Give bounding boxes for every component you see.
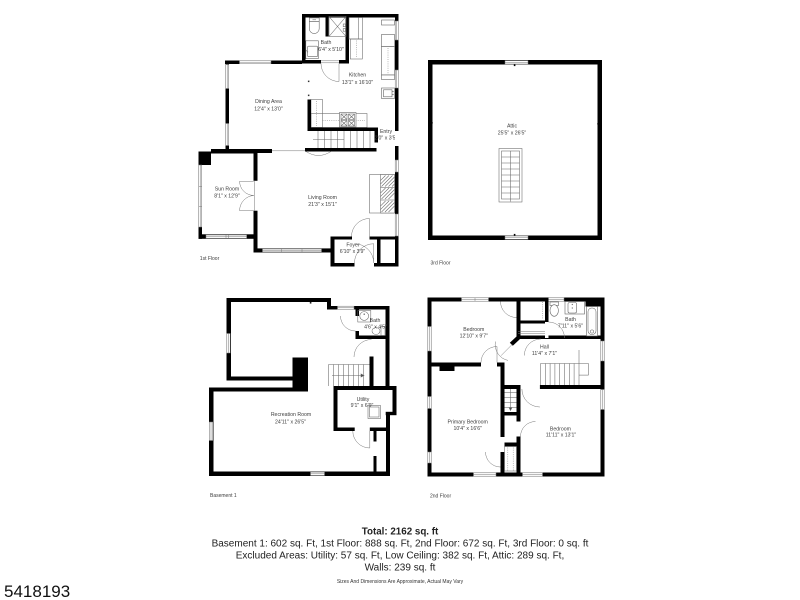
svg-text:Bath: Bath: [370, 318, 381, 324]
svg-text:5418193: 5418193: [4, 582, 70, 600]
svg-text:2'0" x 3'5": 2'0" x 3'5": [375, 136, 398, 142]
svg-text:7'11" x 5'6": 7'11" x 5'6": [558, 324, 583, 330]
svg-text:24'11" x 26'5": 24'11" x 26'5": [275, 420, 306, 426]
svg-text:Bath: Bath: [565, 317, 576, 323]
svg-text:Kitchen: Kitchen: [349, 73, 366, 79]
svg-text:10'4" x 16'6": 10'4" x 16'6": [453, 426, 482, 432]
svg-text:Bedroom: Bedroom: [550, 426, 571, 432]
svg-text:Recreation Room: Recreation Room: [271, 412, 311, 418]
svg-text:2nd Floor: 2nd Floor: [430, 494, 451, 500]
svg-text:25'5" x 26'5": 25'5" x 26'5": [498, 131, 527, 137]
svg-text:Primary Bedroom: Primary Bedroom: [448, 420, 488, 426]
svg-text:4'6" x 4'5": 4'6" x 4'5": [364, 325, 387, 331]
svg-text:Entry: Entry: [380, 129, 393, 135]
svg-text:Attic: Attic: [507, 124, 517, 130]
svg-text:11'4" x 7'1": 11'4" x 7'1": [532, 351, 557, 357]
svg-text:3rd Floor: 3rd Floor: [431, 261, 451, 267]
svg-text:12'10" x 9'7": 12'10" x 9'7": [460, 333, 489, 339]
svg-text:1st Floor: 1st Floor: [200, 256, 220, 262]
svg-text:Excluded Areas: Utility: 57 sq: Excluded Areas: Utility: 57 sq. Ft, Low …: [236, 551, 564, 562]
svg-text:Sizes And Dimensions Are Appro: Sizes And Dimensions Are Approximate, Ac…: [337, 579, 464, 585]
svg-text:Dining Area: Dining Area: [255, 99, 282, 105]
svg-text:9'1" x 6'9": 9'1" x 6'9": [351, 403, 374, 409]
svg-text:Basement 1: Basement 1: [210, 493, 237, 499]
svg-text:Bath: Bath: [321, 40, 332, 46]
svg-text:Total: 2162 sq. ft: Total: 2162 sq. ft: [362, 527, 439, 538]
svg-text:13'1" x 16'10": 13'1" x 16'10": [342, 80, 373, 86]
svg-text:Foyer: Foyer: [346, 243, 360, 249]
svg-text:Bedroom: Bedroom: [463, 327, 484, 333]
svg-text:6'4" x 5'10": 6'4" x 5'10": [318, 47, 344, 53]
svg-text:Living Room: Living Room: [308, 195, 337, 201]
svg-text:Basement 1: 602 sq. Ft, 1st Fl: Basement 1: 602 sq. Ft, 1st Floor: 888 s…: [212, 539, 589, 550]
svg-text:8'1" x 12'9": 8'1" x 12'9": [214, 193, 240, 199]
svg-text:12'4" x 13'0": 12'4" x 13'0": [254, 106, 283, 112]
svg-text:21'3" x 15'1": 21'3" x 15'1": [308, 202, 337, 208]
svg-text:Walls: 239 sq. ft: Walls: 239 sq. ft: [365, 563, 436, 574]
svg-text:11'11" x 13'1": 11'11" x 13'1": [546, 433, 577, 439]
svg-text:Sun Room: Sun Room: [215, 187, 240, 193]
svg-text:Hall: Hall: [540, 344, 549, 350]
svg-text:6'10" x 3'9": 6'10" x 3'9": [340, 249, 366, 255]
